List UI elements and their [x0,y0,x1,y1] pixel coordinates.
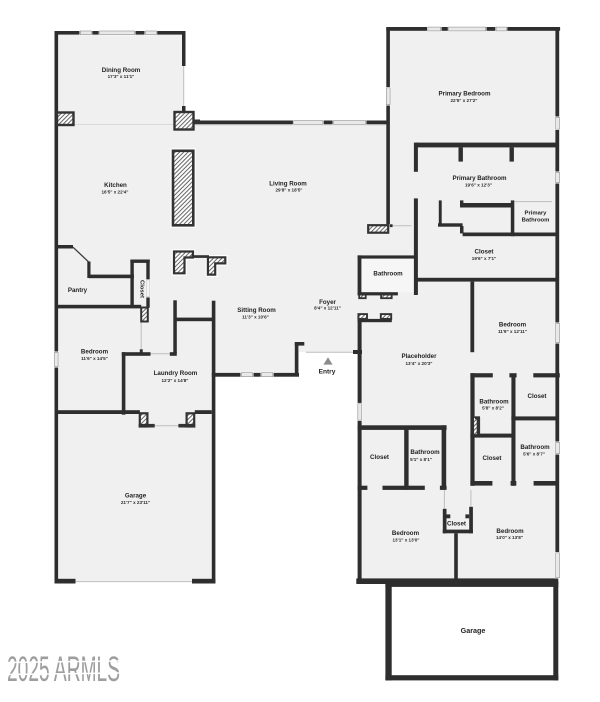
svg-text:Closet: Closet [370,454,389,461]
svg-text:11'9" x 12'11": 11'9" x 12'11" [498,329,527,334]
svg-text:11'6" x 14'5": 11'6" x 14'5" [81,356,108,361]
svg-text:Closet: Closet [475,249,494,256]
svg-text:2025 ARMLS: 2025 ARMLS [7,650,120,689]
svg-text:Closet: Closet [483,455,502,462]
svg-text:13'1" x 13'0": 13'1" x 13'0" [393,538,420,543]
svg-text:12'2" x 14'8": 12'2" x 14'8" [162,378,189,383]
svg-text:Garage: Garage [125,493,147,500]
svg-text:Bathroom: Bathroom [373,271,403,278]
svg-text:Bedroom: Bedroom [81,349,109,356]
svg-text:Primary Bathroom: Primary Bathroom [453,175,507,182]
svg-text:Bathroom: Bathroom [410,449,440,456]
svg-text:Placeholder: Placeholder [401,353,437,360]
svg-text:Sitting Room: Sitting Room [237,307,276,314]
svg-text:5'1" x 8'1": 5'1" x 8'1" [410,457,432,462]
svg-text:Pantry: Pantry [68,287,88,294]
svg-text:Bathroom: Bathroom [520,444,550,451]
svg-text:14'0" x 13'8": 14'0" x 13'8" [496,535,523,540]
svg-text:13'4" x 20'3": 13'4" x 20'3" [406,361,433,366]
svg-text:Bedroom: Bedroom [496,528,524,535]
svg-text:19'6" x 12'3": 19'6" x 12'3" [465,183,492,188]
svg-text:16'5" x 22'4": 16'5" x 22'4" [102,189,129,194]
svg-text:21'7" x 23'11": 21'7" x 23'11" [121,500,150,505]
svg-text:Primary: Primary [525,211,548,217]
svg-text:5'6" x 8'7": 5'6" x 8'7" [523,451,545,456]
svg-text:11'3" x 10'6": 11'3" x 10'6" [242,314,269,319]
svg-text:Primary Bedroom: Primary Bedroom [439,91,491,98]
svg-text:Garage: Garage [461,626,486,635]
svg-text:Closet: Closet [138,280,144,298]
svg-text:Laundry Room: Laundry Room [154,370,198,377]
svg-text:17'3" x 11'1": 17'3" x 11'1" [108,74,135,79]
svg-text:Closet: Closet [528,393,547,400]
svg-text:Bathroom: Bathroom [522,217,550,223]
svg-text:19'6" x 7'1": 19'6" x 7'1" [472,256,496,261]
svg-text:22'5" x 27'2": 22'5" x 27'2" [451,98,478,103]
svg-text:5'8" x 8'2": 5'8" x 8'2" [482,405,504,410]
svg-text:Bedroom: Bedroom [392,530,420,537]
svg-text:Closet: Closet [447,521,466,528]
svg-text:Bedroom: Bedroom [499,321,527,328]
svg-text:29'8" x 18'5": 29'8" x 18'5" [276,187,303,192]
svg-text:8'4" x 12'11": 8'4" x 12'11" [314,305,341,310]
svg-text:Dining Room: Dining Room [102,67,141,74]
svg-text:Entry: Entry [319,368,336,375]
svg-text:Kitchen: Kitchen [104,182,127,189]
